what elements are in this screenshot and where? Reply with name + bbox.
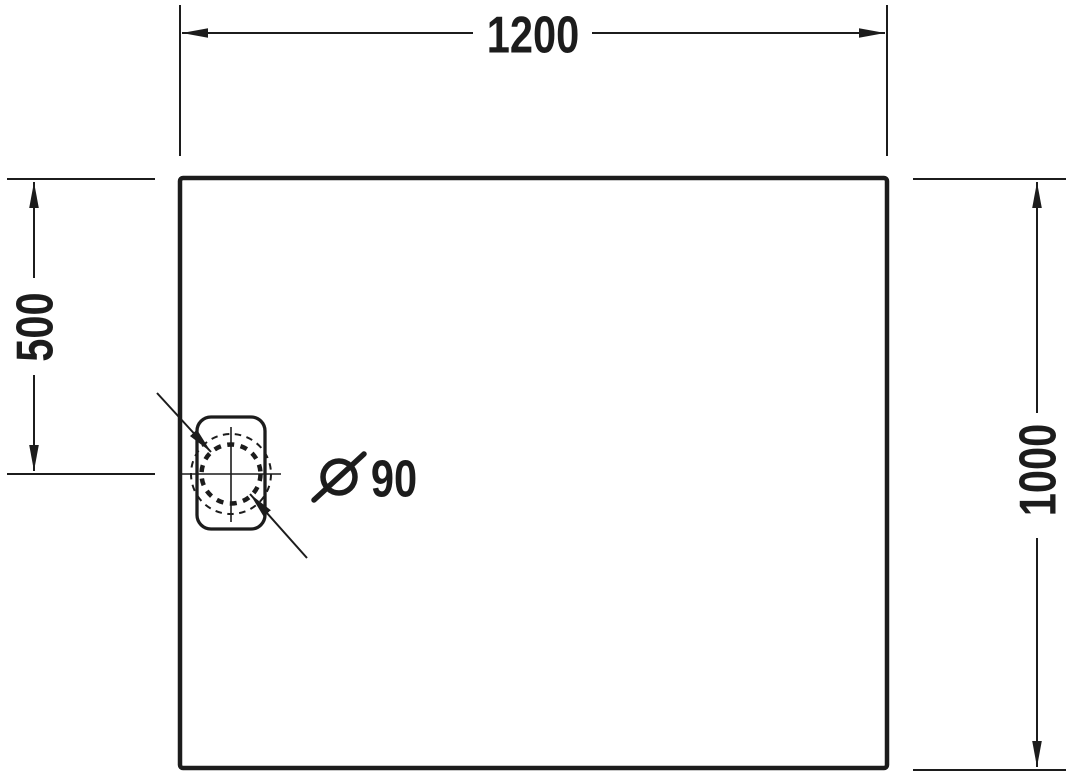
drain-leader-line-upper (157, 393, 211, 452)
drain-offset-label: 500 (5, 292, 64, 361)
width-dimension: 1200 (180, 5, 887, 156)
drawing-canvas: 1200 500 1000 (0, 0, 1072, 776)
drain-offset-dimension: 500 (5, 179, 155, 474)
depth-dimension: 1000 (913, 179, 1067, 770)
depth-dimension-label: 1000 (1008, 424, 1067, 517)
tray-outline (180, 178, 887, 768)
drain-diameter-value: 90 (371, 449, 417, 508)
shower-tray-technical-drawing: 1200 500 1000 (0, 0, 1072, 776)
width-dimension-label: 1200 (487, 5, 580, 64)
drain-diameter-callout: 90 (314, 449, 417, 508)
diameter-symbol-icon (314, 454, 364, 500)
